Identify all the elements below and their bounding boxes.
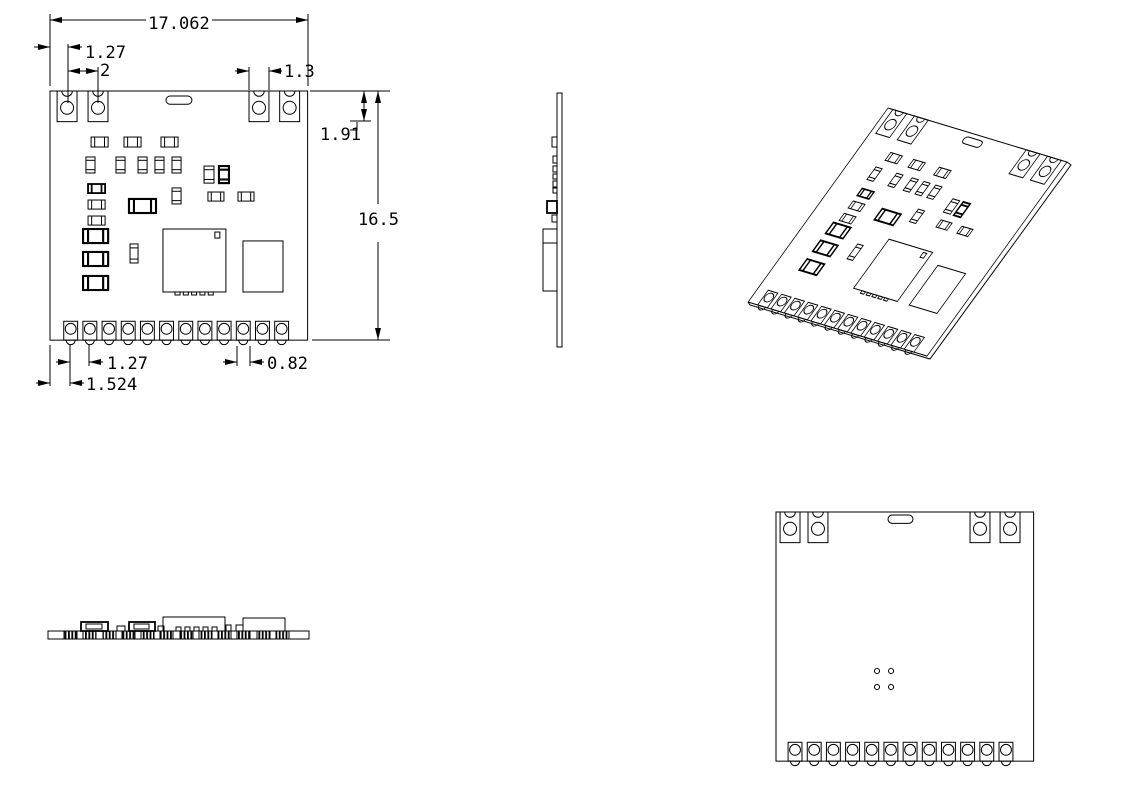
crystal-profile [243,618,285,631]
side-view [543,93,562,347]
dim-label-pad-width: 0.82 [267,354,308,374]
isometric-view [746,108,1071,360]
main-ic-side [543,229,557,291]
pcb-edge [557,93,562,347]
castellated-pads-hatched [64,631,289,639]
back-view [776,512,1034,766]
pcb-module-drawing: 17.062 1.27 2 1.3 [0,0,1121,790]
dim-label-pad-edge-offset: 1.524 [86,375,137,395]
dim-label-tab-width: 1.3 [284,62,315,82]
dim-label-hole-pitch: 2 [100,61,110,81]
dim-label-board-height: 16.5 [358,210,399,230]
dim-label-tab-depth: 1.91 [320,125,361,145]
dim-pad-width: 0.82 [223,346,308,374]
front-view [48,617,309,639]
dim-tab-width: 1.3 [235,62,315,90]
dim-label-pad-pitch: 1.27 [107,354,148,374]
drawing-sheet: 17.062 1.27 2 1.3 [0,0,1121,790]
dim-hole-edge-offset: 1.27 [34,43,126,103]
components-profile [81,617,285,631]
dim-hole-pitch: 2 [68,61,110,103]
dim-label-hole-edge-offset: 1.27 [85,43,126,63]
top-view: 17.062 1.27 2 1.3 [34,14,399,395]
dim-label-board-width: 17.062 [148,14,209,34]
